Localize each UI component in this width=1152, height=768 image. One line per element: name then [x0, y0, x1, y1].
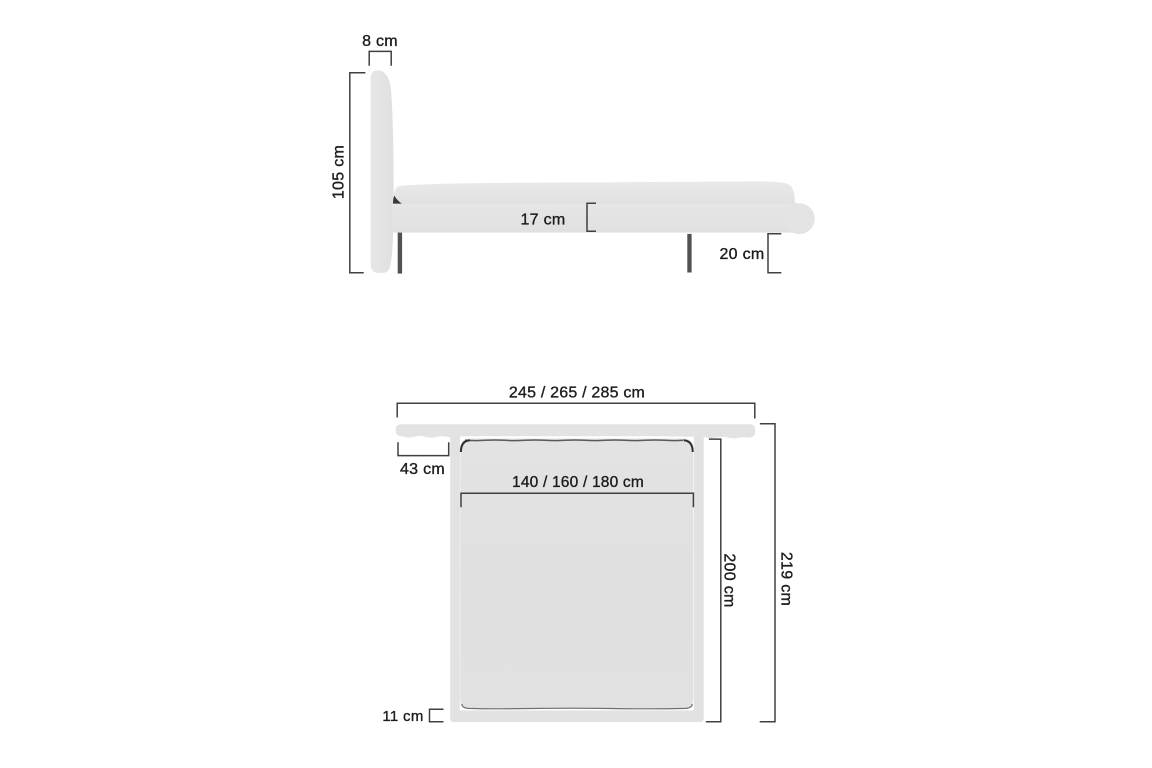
svg-text:245 / 265 / 285 cm: 245 / 265 / 285 cm — [509, 385, 645, 402]
svg-text:200 cm: 200 cm — [721, 553, 738, 607]
svg-text:140 / 160 / 180 cm: 140 / 160 / 180 cm — [512, 474, 644, 491]
svg-text:17 cm: 17 cm — [520, 212, 565, 229]
svg-text:43 cm: 43 cm — [400, 461, 445, 478]
svg-text:11 cm: 11 cm — [382, 708, 423, 725]
svg-text:219 cm: 219 cm — [778, 552, 795, 606]
svg-text:8 cm: 8 cm — [362, 33, 398, 50]
svg-text:105 cm: 105 cm — [331, 145, 348, 199]
svg-text:20 cm: 20 cm — [719, 246, 764, 263]
